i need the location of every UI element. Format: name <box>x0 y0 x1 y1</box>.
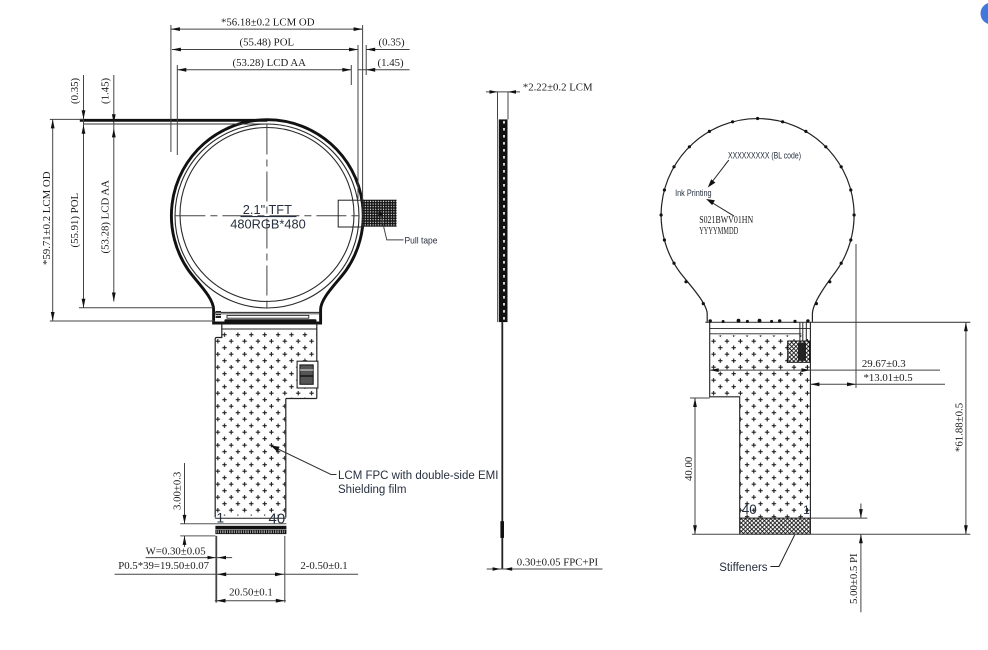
svg-text:LCM FPC with double-side EMI: LCM FPC with double-side EMI <box>338 470 498 482</box>
svg-text:Pull tape: Pull tape <box>405 236 438 247</box>
svg-text:*59.71±0.2 LCM OD: *59.71±0.2 LCM OD <box>41 171 53 265</box>
svg-text:(55.48) POL: (55.48) POL <box>240 37 295 49</box>
svg-text:(53.28) LCD AA: (53.28) LCD AA <box>100 180 112 254</box>
svg-text:40: 40 <box>742 502 757 517</box>
svg-text:20.50±0.1: 20.50±0.1 <box>229 587 273 599</box>
svg-text:2-0.50±0.1: 2-0.50±0.1 <box>300 560 347 572</box>
svg-text:1: 1 <box>803 503 810 517</box>
svg-text:(0.35): (0.35) <box>69 78 81 104</box>
svg-text:2.1" TFT: 2.1" TFT <box>243 202 292 217</box>
svg-text:Ink Printing: Ink Printing <box>675 188 712 198</box>
svg-text:5.00±0.5 PI: 5.00±0.5 PI <box>848 553 860 604</box>
svg-text:(1.45): (1.45) <box>100 78 112 104</box>
svg-text:40.00: 40.00 <box>683 457 695 481</box>
svg-text:Stiffeners: Stiffeners <box>719 562 768 574</box>
svg-text:(0.35): (0.35) <box>379 37 405 49</box>
svg-text:29.67±0.3: 29.67±0.3 <box>862 358 906 370</box>
svg-text:XXXXXXXXX (BL code): XXXXXXXXX (BL code) <box>728 150 801 160</box>
svg-text:0.30±0.05 FPC+PI: 0.30±0.05 FPC+PI <box>517 557 599 569</box>
svg-text:Shielding film: Shielding film <box>338 484 406 496</box>
svg-text:YYYYMMDD: YYYYMMDD <box>699 225 738 237</box>
svg-text:(1.45): (1.45) <box>378 57 404 69</box>
svg-text:1: 1 <box>216 510 224 526</box>
svg-text:*61.88±0.5: *61.88±0.5 <box>954 403 966 452</box>
svg-text:(53.28) LCD AA: (53.28) LCD AA <box>233 57 307 69</box>
svg-text:*56.18±0.2 LCM OD: *56.18±0.2 LCM OD <box>221 17 315 29</box>
svg-text:480RGB*480: 480RGB*480 <box>230 216 305 231</box>
svg-text:W=0.30±0.05: W=0.30±0.05 <box>146 546 206 558</box>
svg-text:*2.22±0.2 LCM: *2.22±0.2 LCM <box>523 82 593 94</box>
svg-text:40: 40 <box>269 511 286 528</box>
svg-text:3.00±0.3: 3.00±0.3 <box>172 472 184 510</box>
svg-text:(55.91) POL: (55.91) POL <box>69 193 81 248</box>
svg-text:P0.5*39=19.50±0.07: P0.5*39=19.50±0.07 <box>118 560 209 572</box>
svg-text:*13.01±0.5: *13.01±0.5 <box>864 372 913 384</box>
